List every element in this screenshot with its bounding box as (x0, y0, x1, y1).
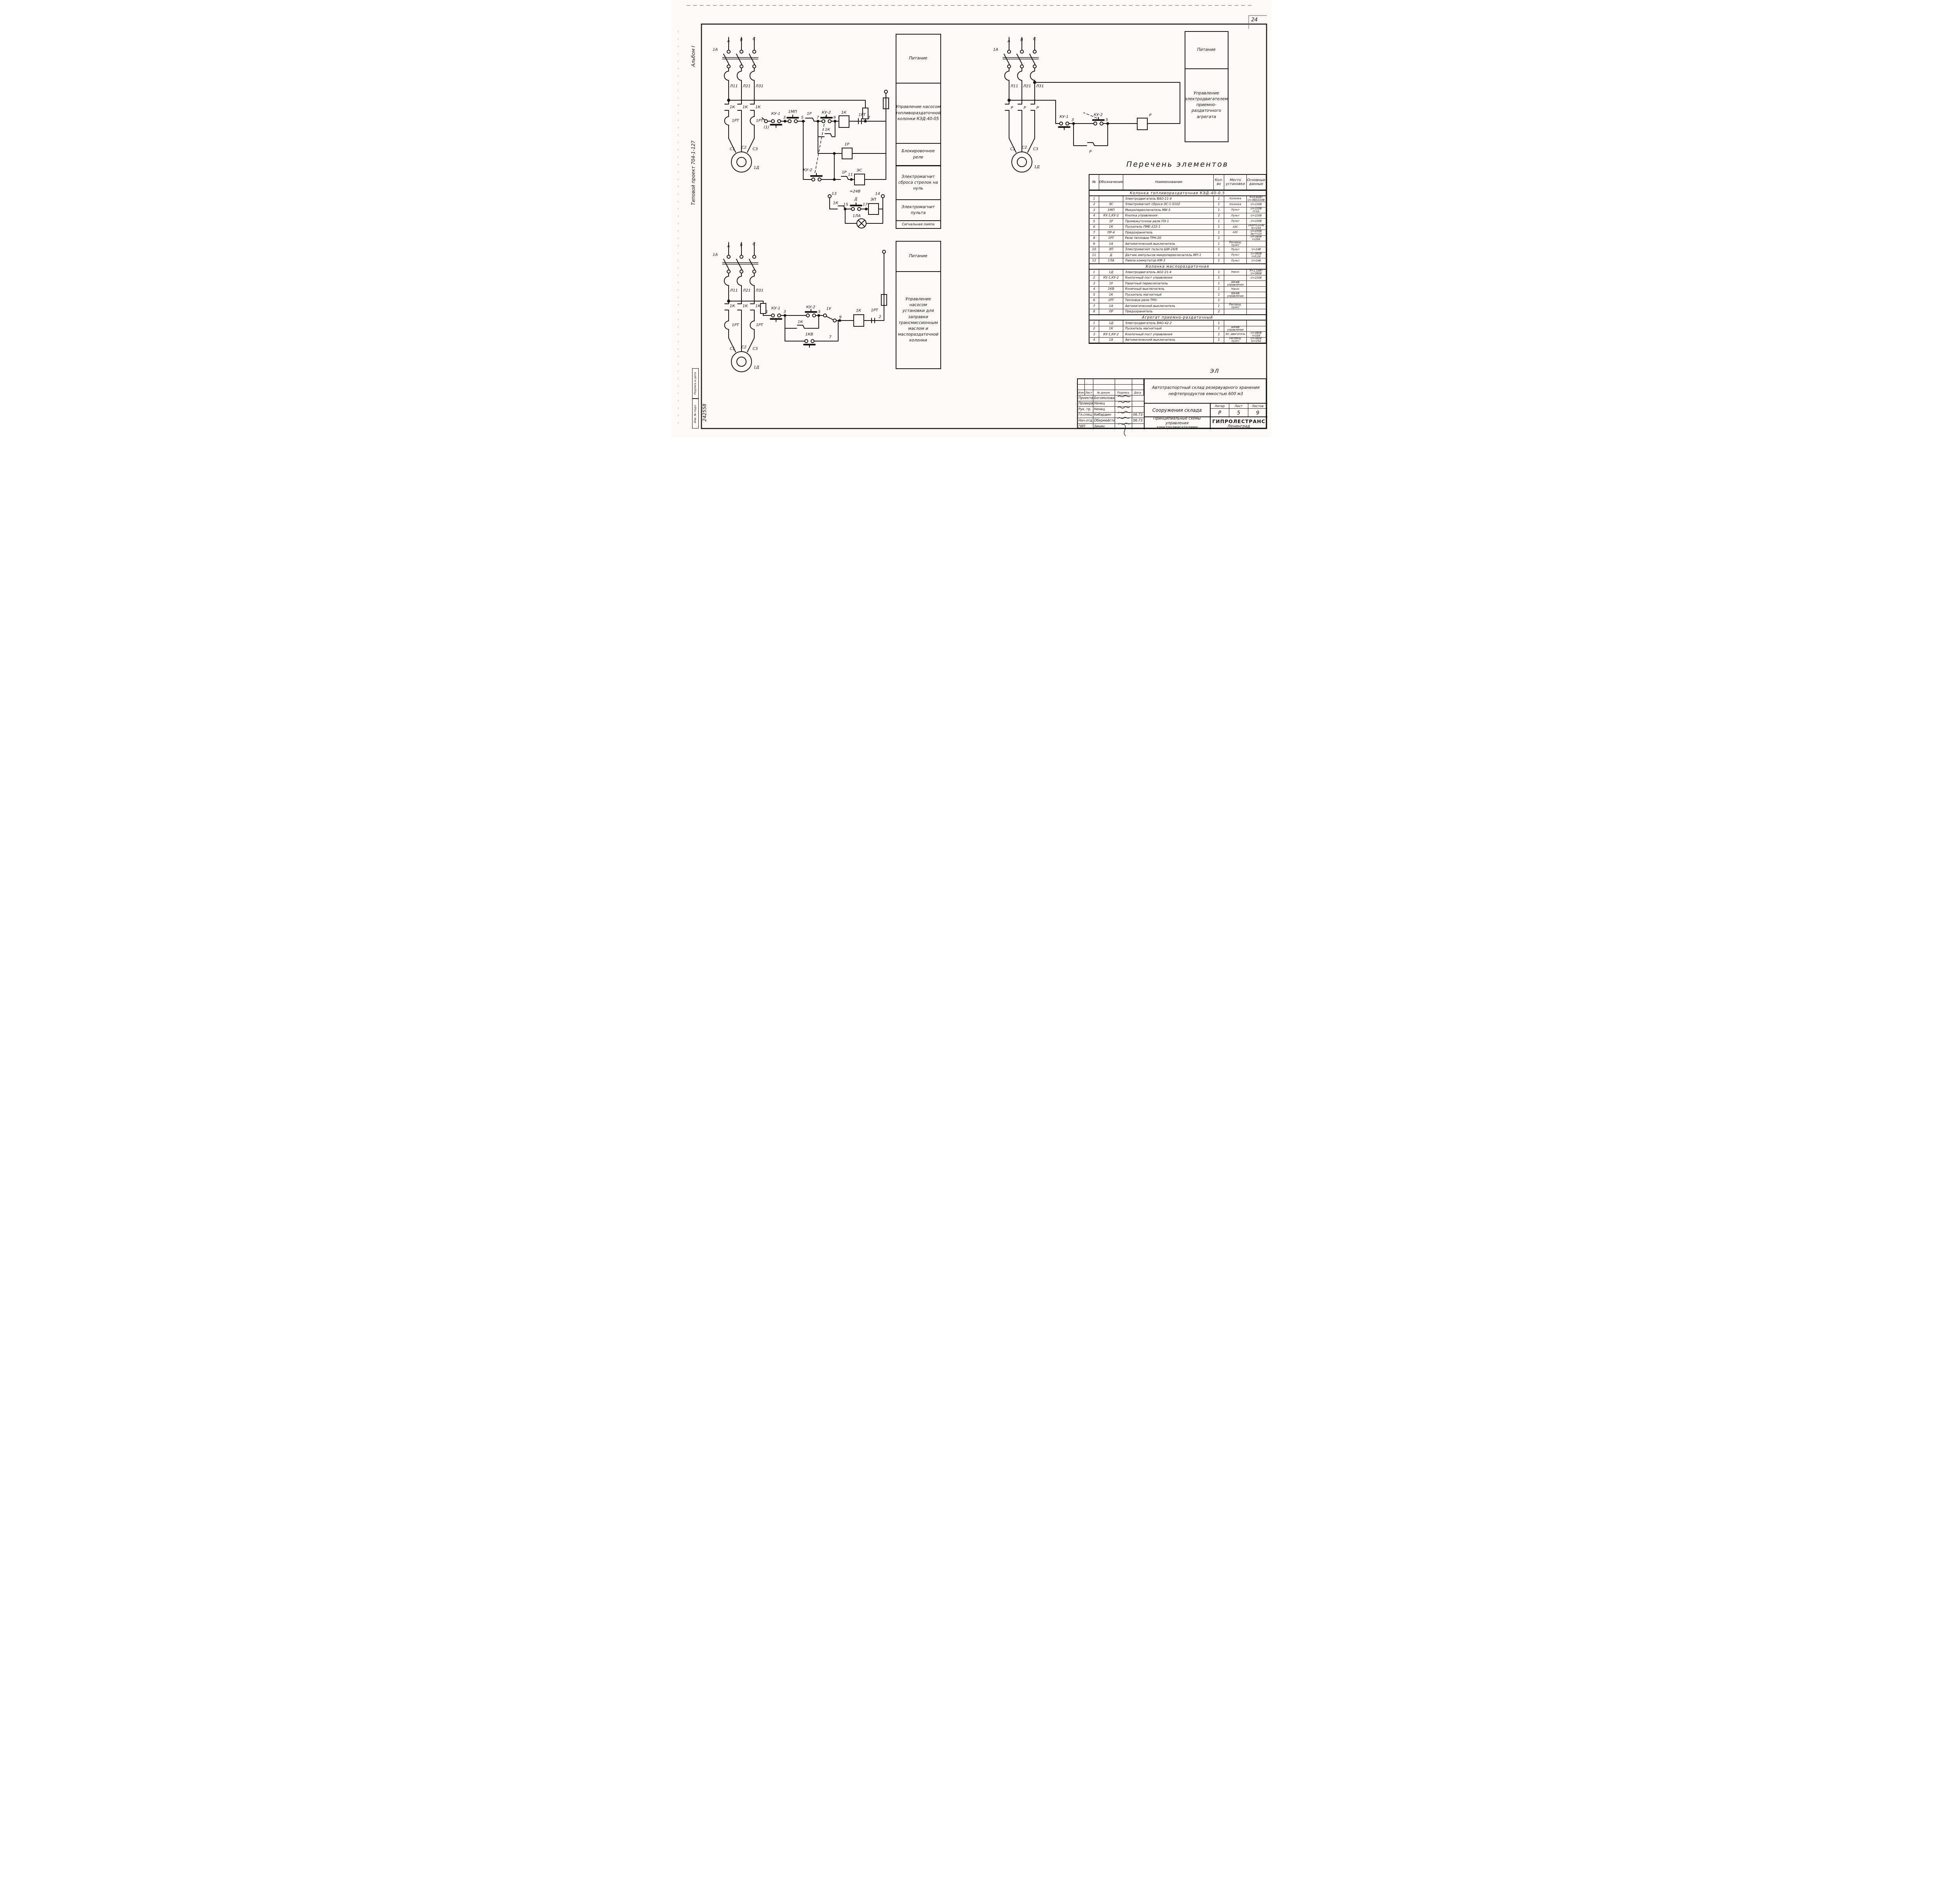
parts-cell: Пульт (1224, 207, 1247, 213)
parts-cell: Пускатель магнитный (1123, 326, 1214, 332)
aggregate-function-panel: Питание Управление электродвигателем при… (1185, 31, 1229, 142)
parts-cell (1247, 287, 1266, 292)
panel-box: Блокировочное реле (896, 143, 941, 166)
signature-rows: Проектир.БогомоловаПроверилНенецРук. гр.… (1078, 395, 1144, 429)
parts-cell (1247, 298, 1266, 303)
sheet-number: 5 (1229, 409, 1248, 417)
parts-cell: 1МП (1099, 207, 1123, 213)
parts-cell: Пульт (1224, 219, 1247, 224)
parts-cell: Д (1099, 253, 1123, 258)
parts-cell: 1 (1214, 253, 1225, 258)
parts-row: 51КПускатель магнитный1Шкаф управления (1089, 292, 1266, 298)
parts-cell: 1 (1214, 270, 1225, 275)
parts-cell: 1Д (1099, 270, 1123, 275)
parts-cell: Тепловое реле ТРН- (1123, 298, 1214, 303)
parts-cell: 1 (1214, 287, 1225, 292)
parts-cell: 1 (1214, 332, 1225, 337)
parts-cell: 9 (1089, 241, 1100, 247)
sheet-title: Принципиальные схемы управления электрод… (1144, 417, 1210, 429)
parts-cell: Пульт (1224, 258, 1247, 264)
sheets-total: 9 (1248, 409, 1267, 417)
signature-date (1132, 424, 1144, 430)
parts-cell: U=380В I=0,2А (1247, 253, 1266, 258)
parts-cell: КУ-1,КУ-2 (1099, 213, 1123, 219)
parts-cell: 1 (1089, 321, 1100, 326)
parts-cell: 1Р (1099, 219, 1123, 224)
parts-row: 61РТТепловое реле ТРН-1 (1089, 298, 1266, 304)
parts-cell: 1 (1214, 303, 1225, 309)
parts-row: 71ААвтоматический выключатель1Распред. п… (1089, 303, 1266, 309)
signature-mark (1115, 418, 1132, 423)
organization-city: Ленинград (1228, 424, 1250, 429)
corner-sheet-number: 24 (1251, 17, 1258, 23)
signature-date (1132, 401, 1144, 407)
parts-cell: Насос (1224, 270, 1247, 275)
parts-cell: 1 (1214, 281, 1225, 286)
signature-name: Кибардин (1093, 413, 1115, 418)
signature-mark (1115, 401, 1132, 407)
revision-header-cell: Лист (1085, 390, 1093, 395)
parts-cell (1247, 241, 1266, 247)
parts-cell: Насос (1224, 287, 1247, 292)
signature-role: Проектир. (1078, 395, 1093, 401)
parts-cell: 4 (1089, 287, 1100, 292)
parts-table-header-row: №ОбозначениеНаименованиеКол-воМесто уста… (1089, 175, 1266, 190)
parts-cell: АЗС (1224, 225, 1247, 230)
liter-sheet-grid: Литер Лист Листов Р 5 9 (1210, 404, 1267, 417)
drawing-sheet: АВС1АЛ11Л21Л311К1К1К1РТ1РТС1С2С31Д(1)КУ-… (671, 0, 1271, 437)
parts-cell: 1 (1214, 321, 1225, 326)
signature-date (1132, 395, 1144, 401)
parts-cell: Колонка (1224, 202, 1247, 207)
signature-role: Проверил (1078, 401, 1093, 407)
parts-cell: Кнопочный пост управления (1123, 275, 1214, 281)
parts-table-header-cell: № (1089, 175, 1100, 190)
parts-cell (1224, 275, 1247, 281)
parts-cell: Электродвигатель ВАО-11-4 (1123, 196, 1214, 202)
parts-row: 7ПР-4Предохранитель1АЗСU=220В Iвст=2А (1089, 230, 1266, 236)
parts-row: 121ЛАЛампа коммутатор КМ-31ПультU=24В (1089, 258, 1266, 264)
panel-box: Питание (896, 241, 941, 272)
parts-cell (1247, 321, 1266, 326)
signature-name: Ненец (1093, 407, 1115, 412)
parts-cell: 1 (1214, 338, 1225, 343)
parts-cell: P=1,1кВт U=380В (1247, 270, 1266, 275)
revision-header: Изм Лист № докум. Подпись Дата (1078, 390, 1144, 395)
inventory-number: 242558 (702, 404, 707, 422)
parts-cell: Промежуточное реле ПЭ-1 (1123, 219, 1214, 224)
parts-cell (1224, 309, 1247, 315)
parts-cell: 1РТ (1099, 298, 1123, 303)
parts-cell: 5 (1089, 292, 1100, 298)
parts-cell: 7 (1089, 303, 1100, 309)
sheets-label: Листов (1248, 404, 1267, 408)
parts-cell: U=220В (1247, 202, 1266, 207)
parts-cell: Кнопка управления (1123, 213, 1214, 219)
parts-table-header-cell: Место установки (1224, 175, 1247, 190)
parts-cell: 5 (1089, 219, 1100, 224)
parts-cell: Uкат=220В Iк=23А (1247, 225, 1266, 230)
parts-section-header: Агрегат приемно-раздаточный (1089, 315, 1266, 321)
parts-cell (1247, 292, 1266, 298)
parts-cell: 2 (1089, 202, 1100, 207)
parts-cell: 1 (1214, 219, 1225, 224)
signature-mark (1115, 424, 1132, 430)
parts-cell (1247, 309, 1266, 315)
parts-cell: 1 (1214, 236, 1225, 241)
parts-table-header-cell: Наименование (1123, 175, 1214, 190)
parts-cell: 6 (1089, 225, 1100, 230)
parts-cell: ЭП (1099, 247, 1123, 253)
parts-cell: 1 (1214, 275, 1225, 281)
parts-cell: 1 (1089, 196, 1100, 202)
panel-box: Питание (1185, 31, 1229, 69)
parts-cell: 1 (1214, 326, 1225, 332)
parts-cell: Колонка (1224, 196, 1247, 202)
parts-row: 41ААвтоматический выключатель1Распред. п… (1089, 338, 1266, 343)
signature-row: Гл.спец.Кибардин06.73 (1078, 413, 1144, 418)
parts-table: №ОбозначениеНаименованиеКол-воМесто уста… (1089, 174, 1267, 344)
signature-date (1132, 407, 1144, 412)
parts-cell: 1А (1099, 303, 1123, 309)
parts-cell (1224, 236, 1247, 241)
panel-box: Питание (896, 34, 941, 84)
parts-table-title: Перечень элементов (1089, 160, 1267, 169)
parts-cell: Микропереключатель МИ-3 (1123, 207, 1214, 213)
parts-cell: 2 (1214, 213, 1225, 219)
revision-header-cell: № докум. (1093, 390, 1115, 395)
parts-cell: Лампа коммутатор КМ-3 (1123, 258, 1214, 264)
parts-cell (1247, 326, 1266, 332)
parts-cell (1247, 281, 1266, 286)
parts-cell: 2 (1214, 309, 1225, 315)
parts-row: 4КУ-1,КУ-2Кнопка управления2ПультU=220В (1089, 213, 1266, 219)
parts-cell: Пускатель ПМЕ-222-1 (1123, 225, 1214, 230)
parts-cell: U=24В (1247, 258, 1266, 264)
parts-row: 11ДЭлектродвигатель ВАО-42-21 (1089, 321, 1266, 326)
parts-cell: 1К (1099, 292, 1123, 298)
parts-table-header-cell: Обозначение (1099, 175, 1123, 190)
project-number-label: Типовой проект 704-1-127 (691, 141, 696, 206)
parts-cell: U=220В (1247, 275, 1266, 281)
signature-mark (1115, 395, 1132, 401)
parts-row: 10ЭПЭлектромагнит пульта ШИ-24/81ПультU=… (1089, 247, 1266, 253)
parts-cell: U=220В (1247, 219, 1266, 224)
liter-label: Литер (1211, 404, 1230, 408)
parts-row: 31УПакетный переключатель1Шкаф управлени… (1089, 281, 1266, 287)
parts-row: 8ПРПредохранитель2 (1089, 309, 1266, 315)
parts-cell: 1А (1099, 241, 1123, 247)
parts-row: 3КУ-1,КУ-2Кнопочный пост управления1Эл. … (1089, 332, 1266, 338)
parts-cell: 1К (1099, 225, 1123, 230)
parts-cell: 1 (1214, 241, 1225, 247)
parts-cell (1247, 303, 1266, 309)
parts-cell: 8 (1089, 309, 1100, 315)
parts-cell (1099, 196, 1123, 202)
parts-cell: ПР (1099, 309, 1123, 315)
parts-cell: Пускатель магнитный (1123, 292, 1214, 298)
signature-name: Богомолова (1093, 395, 1115, 401)
parts-cell: 1 (1214, 225, 1225, 230)
liter-value: Р (1211, 409, 1230, 417)
parts-row: 11ДДатчик импульсов микропереключатель М… (1089, 253, 1266, 258)
signature-row: Рук. гр.Ненец (1078, 407, 1144, 413)
parts-section-header: Колонка маслораздаточная (1089, 264, 1266, 270)
parts-cell: U=220В (1247, 213, 1266, 219)
parts-cell: Распред. пункт (1224, 338, 1247, 343)
object-title: Сооружения склада (1144, 404, 1210, 417)
fuel-function-panel: Питание Управление насосом топливораздат… (896, 34, 941, 229)
parts-cell: 1 (1214, 196, 1225, 202)
parts-cell: 8 (1089, 236, 1100, 241)
parts-cell: Шкаф управления (1224, 326, 1247, 332)
parts-row: 2КУ-1,КУ-2Кнопочный пост управления1U=22… (1089, 275, 1266, 281)
parts-cell: 10 (1089, 247, 1100, 253)
parts-cell: Электродвигатель ВАО-42-2 (1123, 321, 1214, 326)
parts-cell: Эл. двигатель (1224, 332, 1247, 337)
signature-date: 06.73 (1132, 413, 1144, 418)
parts-cell: Автоматический выключатель (1123, 303, 1214, 309)
inventory-label: Инв. № подл. (694, 404, 697, 423)
document-code: ЭЛ (1210, 368, 1220, 375)
parts-row: 1Электродвигатель ВАО-11-41КолонкаP=0,6к… (1089, 196, 1266, 202)
parts-cell: Датчик импульсов микропереключатель МП-1 (1123, 253, 1214, 258)
parts-cell: Автоматический выключатель (1123, 241, 1214, 247)
parts-cell: Распред. пункт (1224, 241, 1247, 247)
parts-row: 81РТРеле тепловое ТРН-201U=380В I=20А (1089, 236, 1266, 242)
sheet-label: Лист (1229, 404, 1248, 408)
signature-mark (1115, 407, 1132, 412)
inventory-cell: Инв. № подл. (692, 399, 699, 429)
parts-cell: 1 (1089, 270, 1100, 275)
revision-grid (1078, 379, 1144, 390)
signature-row: ГИПЗинин (1078, 424, 1144, 430)
parts-row: 91ААвтоматический выключатель1Распред. п… (1089, 241, 1266, 247)
parts-cell: Пульт (1224, 247, 1247, 253)
parts-cell: 1К (1099, 326, 1123, 332)
parts-cell: U=380В I=10А (1247, 332, 1266, 337)
parts-cell: ПР-4 (1099, 230, 1123, 235)
parts-cell: Автоматический выключатель (1123, 338, 1214, 343)
parts-cell: 3 (1089, 332, 1100, 337)
signature-role: ГИП (1078, 424, 1093, 430)
parts-cell: Конечный выключатель (1123, 287, 1214, 292)
signature-role: Рук. гр. (1078, 407, 1093, 412)
parts-row: 61КПускатель ПМЕ-222-11АЗСUкат=220В Iк=2… (1089, 225, 1266, 230)
parts-cell: 1РТ (1099, 236, 1123, 241)
revision-header-cell: Подпись (1115, 390, 1132, 395)
parts-cell: Кнопочный пост управления (1123, 332, 1214, 337)
parts-cell: Пульт (1224, 213, 1247, 219)
parts-row: 2ЭСЭлектромагнит сброса ЭС-1-51021Колонк… (1089, 202, 1266, 208)
signature-name: Ненец (1093, 401, 1115, 407)
parts-table-header-cell: Основные данные (1247, 175, 1266, 190)
panel-box: Электромагнит сброса стрелок на нуль (896, 165, 941, 200)
parts-cell: 1 (1214, 292, 1225, 298)
parts-cell (1224, 321, 1247, 326)
parts-cell: Распред. пункт (1224, 303, 1247, 309)
parts-cell: 11 (1089, 253, 1100, 258)
parts-cell: 4 (1089, 213, 1100, 219)
panel-box: Управление насосом топливораздаточной ко… (896, 83, 941, 144)
oil-function-panel: Питание Управление насосом установки для… (896, 241, 941, 369)
parts-cell: 1 (1214, 207, 1225, 213)
organization-name: ГИПРОЛЕСТРАНС (1212, 418, 1265, 424)
parts-cell: 12 (1089, 258, 1100, 264)
signature-role: Гл.спец. (1078, 413, 1093, 418)
parts-cell: 2 (1089, 275, 1100, 281)
signature-mark (1115, 413, 1132, 418)
parts-cell (1224, 298, 1247, 303)
parts-table-header-cell: Кол-во (1214, 175, 1225, 190)
signature-date: 06.73 (1132, 418, 1144, 423)
parts-cell: U=380В I=20А (1247, 236, 1266, 241)
revision-header-cell: Изм (1078, 390, 1085, 395)
parts-cell: 1 (1214, 230, 1225, 235)
parts-cell: Предохранитель (1123, 309, 1214, 315)
album-label: Альбом I (691, 46, 696, 67)
parts-cell: Предохранитель (1123, 230, 1214, 235)
parts-cell: 6 (1089, 298, 1100, 303)
parts-cell: 2 (1089, 326, 1100, 332)
parts-cell: Шкаф управления (1224, 281, 1247, 286)
signature-name: Зинин (1093, 424, 1115, 430)
signature-row: Нач.отд.Обермейстер06.73 (1078, 418, 1144, 424)
parts-cell: U=380В Iн=25А (1247, 338, 1266, 343)
parts-cell: U=24В (1247, 247, 1266, 253)
signature-role: Нач.отд. (1078, 418, 1093, 423)
title-block: Изм Лист № докум. Подпись Дата Проектир.… (1077, 378, 1267, 429)
parts-cell: АЗС (1224, 230, 1247, 235)
parts-cell: 1 (1214, 258, 1225, 264)
signature-name: Обермейстер (1093, 418, 1115, 423)
parts-row: 21КПускатель магнитный1Шкаф управления (1089, 326, 1266, 332)
panel-box: Управление электродвигателем приемно-раз… (1185, 68, 1229, 142)
parts-cell: 3 (1089, 207, 1100, 213)
parts-row: 51РПромежуточное реле ПЭ-11ПультU=220В (1089, 219, 1266, 225)
parts-cell: 1А (1099, 338, 1123, 343)
signature-row: Проектир.Богомолова (1078, 395, 1144, 401)
parts-cell: КУ-1,КУ-2 (1099, 332, 1123, 337)
parts-cell: Шкаф управления (1224, 292, 1247, 298)
parts-cell: 1У (1099, 281, 1123, 286)
parts-cell: 1 (1214, 298, 1225, 303)
parts-cell: 1Д (1099, 321, 1123, 326)
parts-cell: 3 (1089, 281, 1100, 286)
parts-cell: КУ-1,КУ-2 (1099, 275, 1123, 281)
panel-box: Управление насосом установки для заправк… (896, 271, 941, 369)
signature-date-label: Подпись и дата (694, 372, 697, 395)
parts-row: 41КВКонечный выключатель1Насос (1089, 287, 1266, 293)
organization: ГИПРОЛЕСТРАНС Ленинград (1210, 417, 1267, 429)
parts-cell: Электромагнит сброса ЭС-1-5102 (1123, 202, 1214, 207)
parts-cell: 1КВ (1099, 287, 1123, 292)
parts-cell: 7 (1089, 230, 1100, 235)
panel-box: Сигнальная лампа (896, 220, 941, 229)
parts-section-header: Колонка топливораздаточная КЭД-40-0.5 (1089, 190, 1266, 196)
parts-cell: P=0,6кВт U=380/220В (1247, 196, 1266, 202)
parts-cell: 1ЛА (1099, 258, 1123, 264)
parts-cell: Пакетный переключатель (1123, 281, 1214, 286)
parts-cell: Электродвигатель АО2-21-4 (1123, 270, 1214, 275)
panel-box: Электромагнит пульта (896, 199, 941, 221)
signature-date-cell: Подпись и дата (692, 368, 699, 399)
parts-cell: Электромагнит пульта ШИ-24/8 (1123, 247, 1214, 253)
parts-cell: Реле тепловое ТРН-20 (1123, 236, 1214, 241)
project-title: Автотраспортный склад резервуарного хран… (1144, 379, 1267, 404)
parts-cell: 4 (1089, 338, 1100, 343)
parts-cell: U=220В I=1А (1247, 207, 1266, 213)
parts-cell: 1 (1214, 247, 1225, 253)
revision-header-cell: Дата (1132, 390, 1144, 395)
parts-cell: Пульт (1224, 253, 1247, 258)
parts-cell: U=220В Iвст=2А (1247, 230, 1266, 235)
parts-cell: ЭС (1099, 202, 1123, 207)
signature-row: ПроверилНенец (1078, 401, 1144, 407)
parts-row: 31МПМикропереключатель МИ-31ПультU=220В … (1089, 207, 1266, 213)
parts-cell: 1 (1214, 202, 1225, 207)
parts-row: 11ДЭлектродвигатель АО2-21-41НасосP=1,1к… (1089, 270, 1266, 275)
